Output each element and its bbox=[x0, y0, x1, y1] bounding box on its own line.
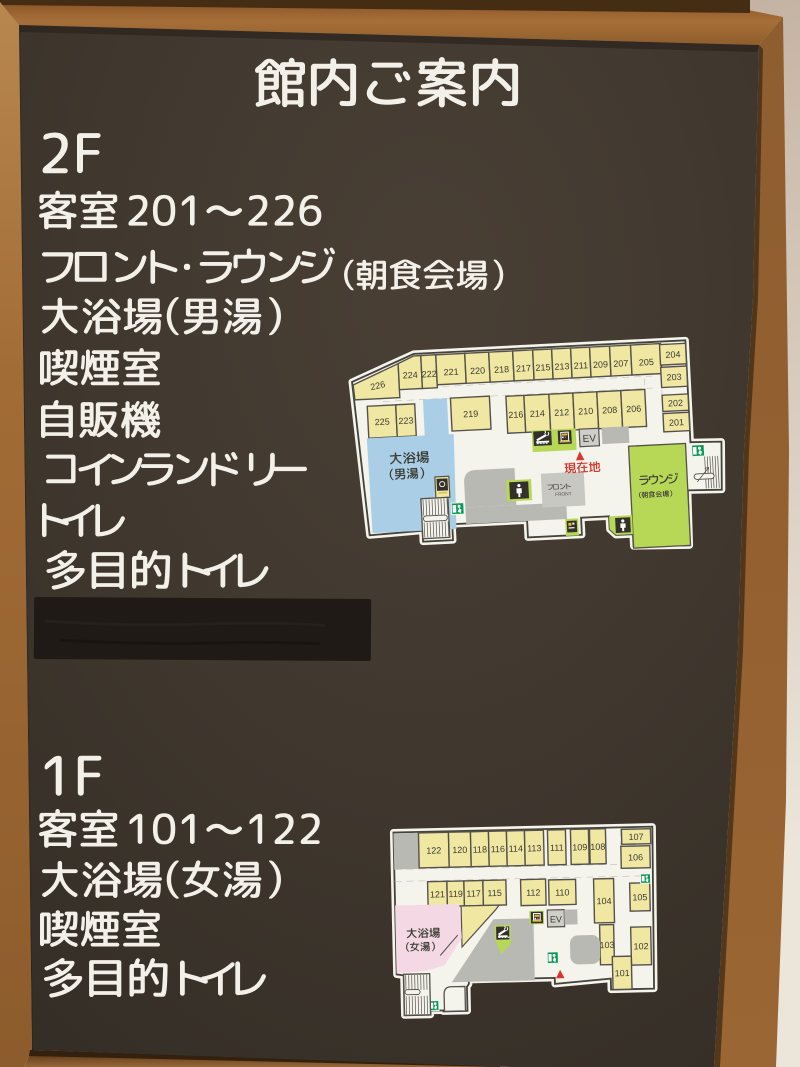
svg-text:119: 119 bbox=[448, 889, 463, 899]
svg-text:218: 218 bbox=[494, 364, 510, 375]
svg-text:206: 206 bbox=[626, 404, 642, 415]
svg-text:215: 215 bbox=[535, 362, 551, 373]
svg-text:118: 118 bbox=[473, 844, 488, 854]
svg-text:110: 110 bbox=[555, 887, 570, 897]
svg-text:210: 210 bbox=[578, 406, 594, 417]
svg-text:201: 201 bbox=[669, 417, 685, 428]
svg-text:101: 101 bbox=[615, 968, 630, 978]
svg-text:115: 115 bbox=[487, 888, 502, 898]
svg-text:214: 214 bbox=[530, 408, 546, 419]
svg-text:121: 121 bbox=[430, 889, 445, 899]
svg-text:120: 120 bbox=[452, 845, 467, 855]
svg-text:222: 222 bbox=[421, 369, 437, 380]
svg-text:103: 103 bbox=[599, 940, 614, 950]
svg-text:114: 114 bbox=[509, 844, 524, 854]
svg-text:203: 203 bbox=[666, 372, 682, 383]
svg-text:208: 208 bbox=[602, 405, 618, 416]
svg-text:EV: EV bbox=[582, 433, 596, 445]
svg-text:FRONT: FRONT bbox=[555, 491, 572, 498]
svg-text:225: 225 bbox=[374, 417, 390, 428]
svg-text:217: 217 bbox=[516, 363, 532, 374]
svg-text:212: 212 bbox=[554, 407, 570, 418]
svg-text:105: 105 bbox=[632, 892, 647, 902]
svg-text:213: 213 bbox=[554, 361, 570, 372]
svg-text:108: 108 bbox=[590, 842, 605, 852]
svg-text:221: 221 bbox=[443, 367, 459, 378]
svg-text:112: 112 bbox=[526, 888, 541, 898]
svg-text:122: 122 bbox=[426, 845, 441, 855]
svg-text:216: 216 bbox=[508, 409, 524, 420]
svg-text:113: 113 bbox=[527, 843, 542, 853]
svg-text:204: 204 bbox=[665, 349, 681, 360]
svg-text:224: 224 bbox=[402, 370, 418, 381]
svg-text:202: 202 bbox=[668, 398, 684, 409]
svg-text:205: 205 bbox=[639, 357, 655, 368]
svg-text:220: 220 bbox=[470, 365, 486, 376]
svg-text:102: 102 bbox=[633, 941, 648, 951]
svg-text:211: 211 bbox=[574, 360, 589, 371]
svg-text:223: 223 bbox=[398, 415, 414, 426]
svg-text:116: 116 bbox=[491, 844, 506, 854]
svg-text:111: 111 bbox=[550, 843, 564, 853]
svg-text:106: 106 bbox=[628, 852, 643, 862]
svg-text:EV: EV bbox=[550, 914, 562, 924]
svg-text:117: 117 bbox=[466, 888, 481, 898]
svg-text:219: 219 bbox=[463, 409, 479, 420]
svg-text:107: 107 bbox=[628, 832, 643, 842]
svg-text:109: 109 bbox=[572, 842, 587, 852]
svg-text:207: 207 bbox=[613, 358, 629, 369]
svg-text:209: 209 bbox=[593, 359, 609, 370]
svg-text:104: 104 bbox=[596, 896, 611, 906]
